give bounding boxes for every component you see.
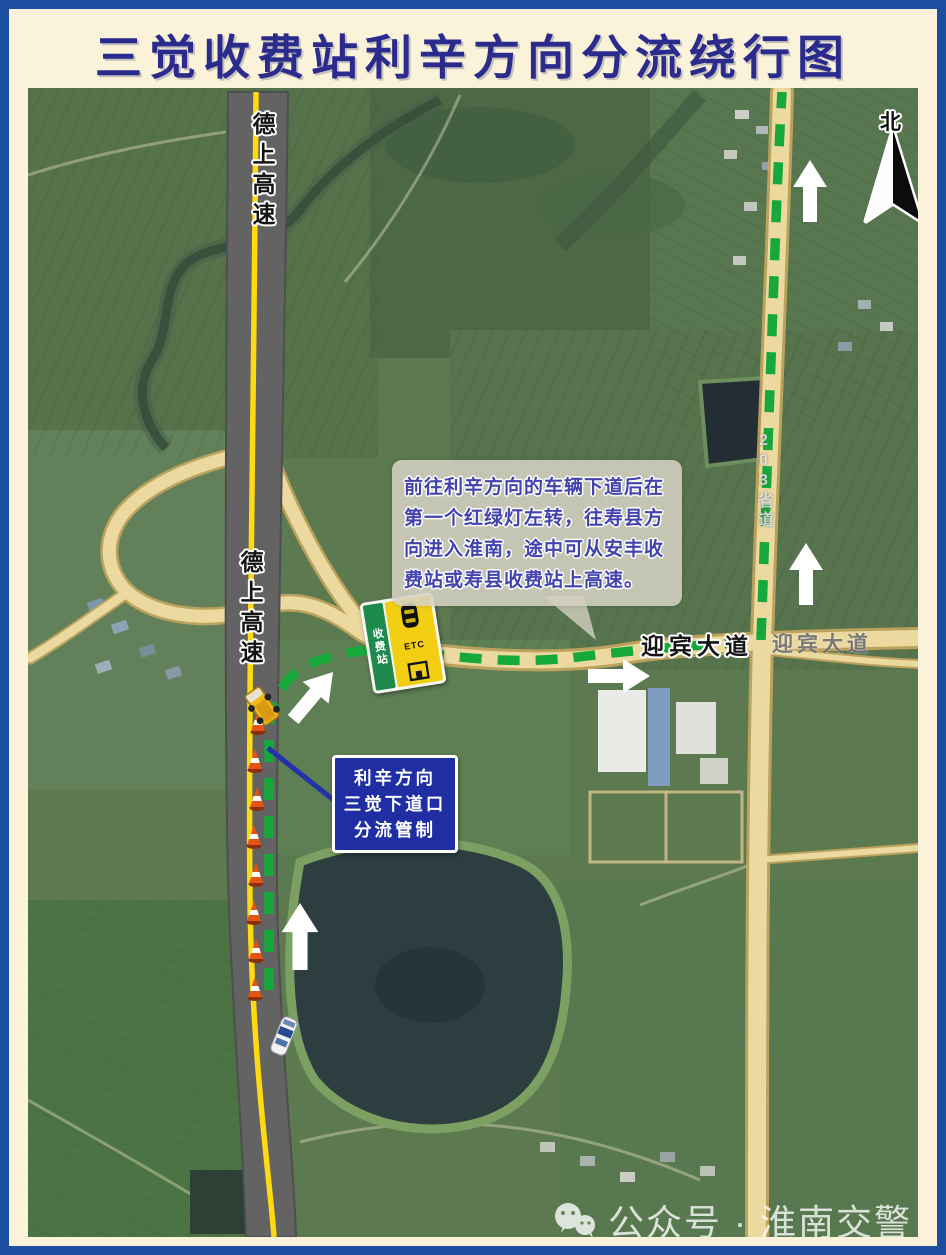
control-line: 利辛方向 [337, 765, 453, 791]
avenue-label-basemap: 迎宾大道 [772, 628, 872, 658]
toll-sign-name: 收费站 [368, 626, 390, 667]
detour-instruction-callout: 前往利辛方向的车辆下道后在 第一个红绿灯左转，往寿县方 向进入淮南，途中可从安丰… [392, 460, 682, 606]
wechat-icon [552, 1201, 598, 1237]
detour-line: 费站或寿县收费站上高速。 [404, 565, 672, 596]
control-notice-box: 利辛方向 三觉下道口 分流管制 [332, 755, 458, 853]
control-line: 分流管制 [337, 817, 453, 843]
provincial-road-label: 203省道 [751, 432, 775, 544]
expressway-label-mid: 德上高速 [227, 550, 261, 684]
watermark: 公众号 · 淮南交警 [552, 1194, 912, 1237]
pond-bottom-left [190, 1170, 246, 1234]
watermark-text: 公众号 · 淮南交警 [608, 1194, 912, 1237]
map-graphics [28, 88, 918, 1237]
poster-panel: 三觉收费站利辛方向分流绕行图 [9, 9, 937, 1246]
poster-title: 三觉收费站利辛方向分流绕行图 [9, 19, 937, 88]
detour-line: 第一个红绿灯左转，往寿县方 [404, 503, 672, 534]
detour-line: 前往利辛方向的车辆下道后在 [404, 472, 672, 503]
avenue-label-overlay: 迎宾大道 [641, 627, 753, 661]
expressway-label-top: 德上高速 [239, 112, 273, 234]
detour-line: 向进入淮南，途中可从安丰收 [404, 534, 672, 565]
north-label: 北 [880, 106, 901, 136]
toll-booth-icon [407, 660, 430, 681]
poster: 三觉收费站利辛方向分流绕行图 [0, 0, 946, 1255]
toll-sign-etc: ETC [403, 639, 425, 652]
satellite-map: 德上高速 德上高速 迎宾大道 迎宾大道 203省道 北 收费站 ETC [28, 88, 918, 1237]
toll-station-sign: 收费站 ETC [359, 592, 446, 694]
control-line: 三觉下道口 [337, 791, 453, 817]
